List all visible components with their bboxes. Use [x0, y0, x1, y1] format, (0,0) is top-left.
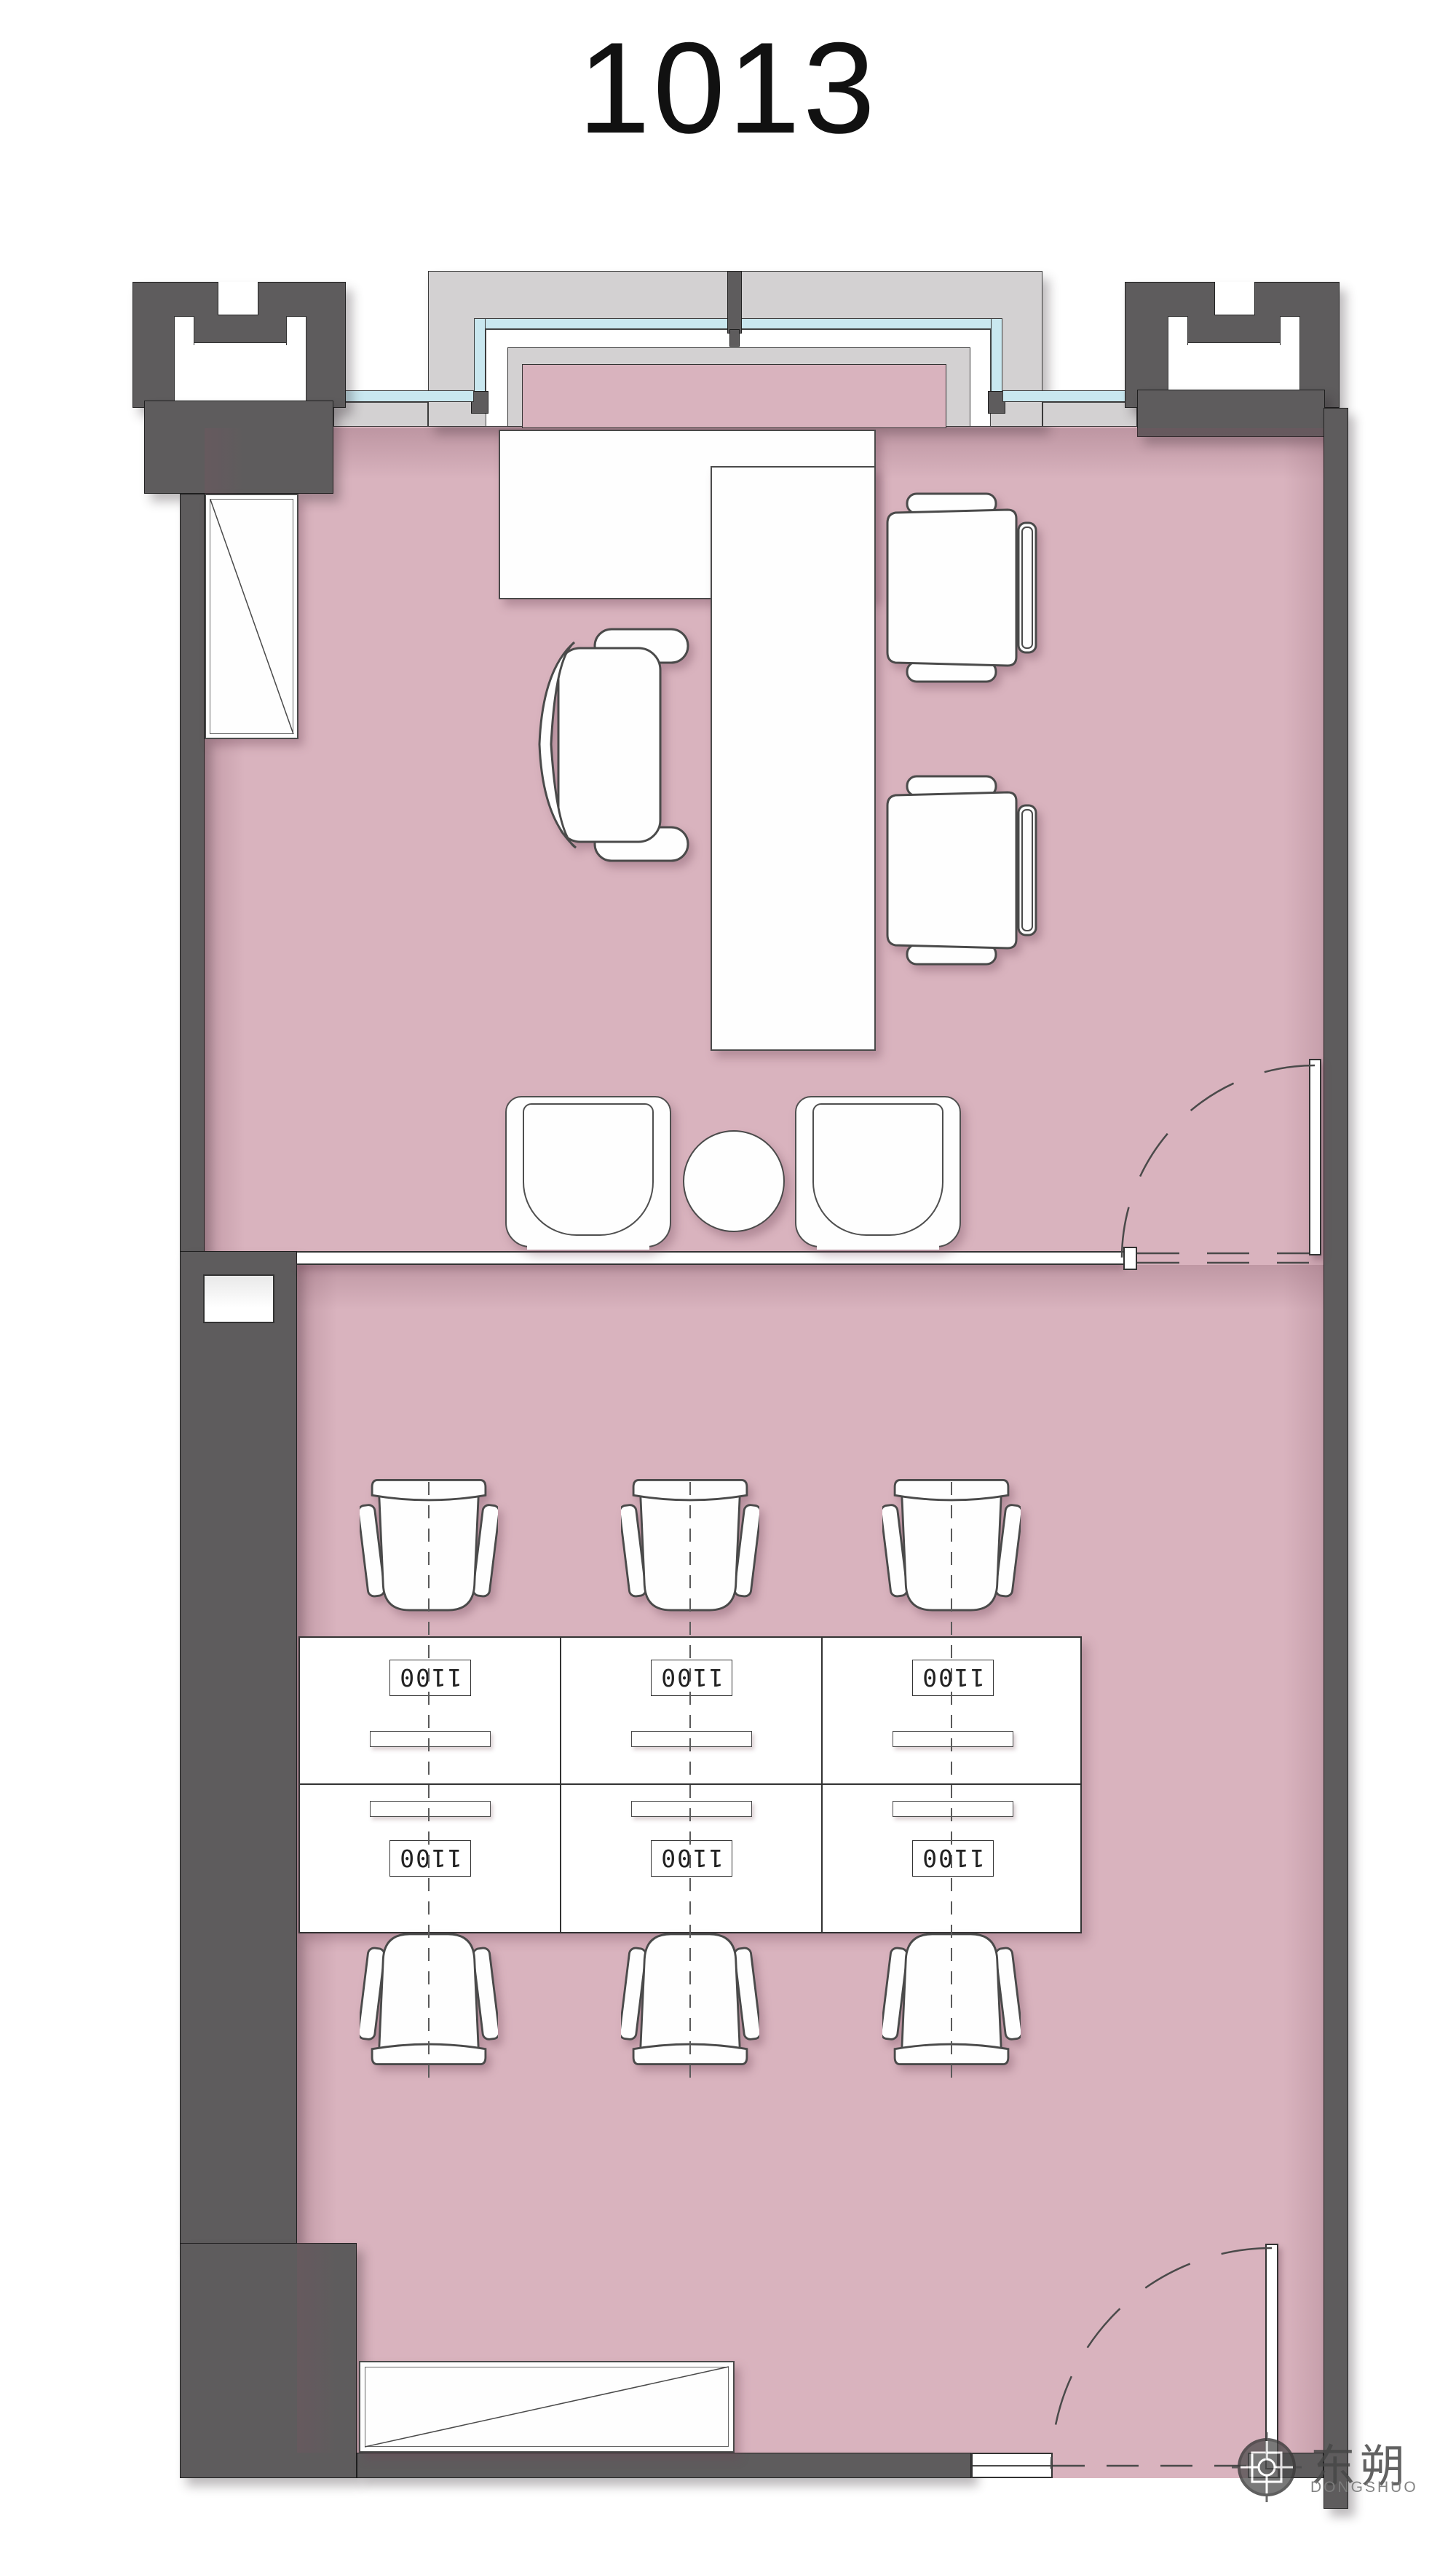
desk-label: 1100: [651, 1660, 732, 1696]
plan-title: 1013: [0, 13, 1456, 162]
workstation-divider-v2: [821, 1638, 823, 1932]
desk-drawer: [370, 1801, 491, 1817]
centerline-column-2: [689, 1482, 691, 2081]
door-leaf-office: [1309, 1059, 1321, 1255]
logo-compass-icon: [1232, 2432, 1302, 2502]
window-strip-right: [1002, 390, 1128, 402]
glass-partition: [297, 1251, 1123, 1265]
workstation-divider-v1: [560, 1638, 561, 1932]
executive-chair: [528, 625, 695, 865]
column-top-right-slot-a: [1168, 316, 1188, 345]
column-top-left: [132, 282, 346, 408]
desk-drawer: [370, 1731, 491, 1747]
executive-desk-main: [711, 466, 876, 1051]
desk-drawer: [631, 1801, 752, 1817]
lounge-chair-1-cushion: [523, 1103, 654, 1236]
guest-chair-2: [885, 775, 1038, 966]
wall-right: [1324, 408, 1348, 2509]
round-side-table: [683, 1130, 785, 1232]
lounge-chair-2-opening: [817, 1244, 939, 1250]
wall-block-upper-right: [1137, 390, 1325, 437]
wall-left-upper: [180, 494, 205, 1253]
column-top-left-slot-b: [286, 316, 306, 345]
lounge-chair-2-cushion: [812, 1103, 943, 1236]
column-top-right-notch: [1214, 282, 1255, 315]
column-top-right-slot-b: [1280, 316, 1300, 345]
bottom-sidelight-window: [971, 2453, 1053, 2478]
wall-bottom-left-segment: [357, 2453, 971, 2478]
tall-cabinet: [205, 494, 298, 739]
logo-name-english: DONGSHUO: [1310, 2479, 1418, 2496]
tall-cabinet-inner: [210, 499, 293, 734]
desk-label: 1100: [389, 1840, 471, 1877]
low-cabinet: [359, 2361, 735, 2453]
column-top-left-notch: [218, 282, 258, 315]
column-top-left-slot-a: [174, 316, 194, 345]
bay-center-mullion-stub: [729, 329, 740, 347]
wall-niche: [203, 1274, 274, 1323]
desk-label: 1100: [912, 1660, 994, 1696]
centerline-column-1: [428, 1482, 430, 2081]
desk-drawer: [631, 1731, 752, 1747]
bay-center-mullion: [727, 271, 742, 334]
bay-floor-platform: [522, 364, 946, 428]
lounge-chair-1-opening: [527, 1244, 649, 1250]
centerline-column-3: [951, 1482, 952, 2081]
desk-label: 1100: [912, 1840, 994, 1877]
guest-chair-1: [885, 492, 1038, 683]
low-cabinet-inner: [365, 2367, 729, 2447]
wall-left-lower: [180, 1251, 297, 2244]
lounge-chair-1: [505, 1096, 671, 1247]
wall-left-bottom: [180, 2243, 357, 2478]
desk-drawer: [893, 1731, 1013, 1747]
logo-center-dot: [1259, 2459, 1275, 2475]
lounge-chair-2: [795, 1096, 961, 1247]
desk-label: 1100: [651, 1840, 732, 1877]
column-top-left-cavity: [174, 342, 306, 409]
exterior-under-strip-left: [333, 402, 428, 427]
window-strip-left: [343, 390, 474, 402]
executive-chair-seat: [558, 648, 660, 842]
desk-label: 1100: [389, 1660, 471, 1696]
exterior-under-strip-right: [1042, 402, 1137, 427]
desk-drawer: [893, 1801, 1013, 1817]
floor-plan-canvas: 1013: [0, 0, 1456, 2567]
wall-block-upper-left: [144, 401, 333, 494]
partition-end-cap: [1123, 1247, 1137, 1270]
